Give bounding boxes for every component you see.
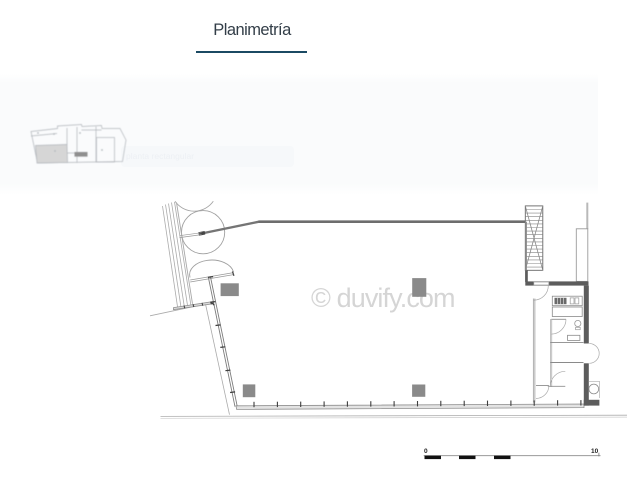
svg-text:10: 10 (591, 448, 599, 455)
svg-text:0: 0 (424, 448, 428, 455)
